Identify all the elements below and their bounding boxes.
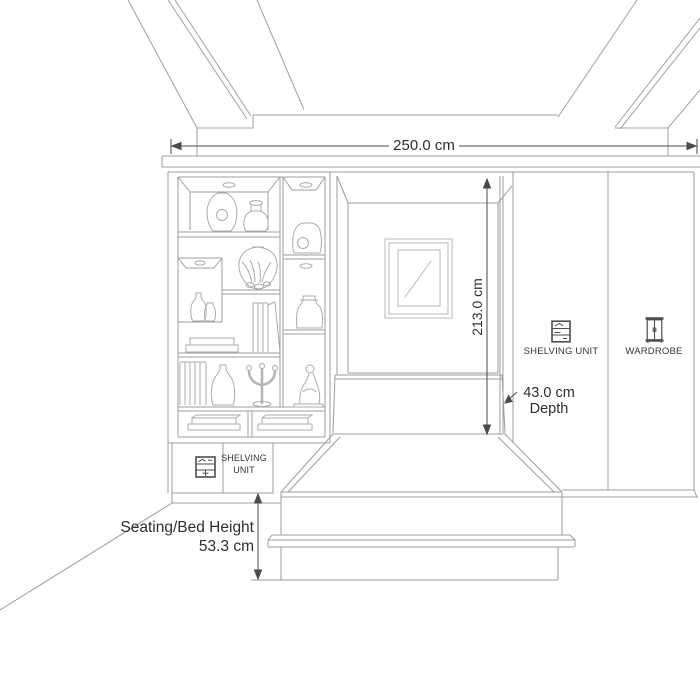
- dimension-seat-height-line: [255, 494, 262, 579]
- seat-height-dimension-label: Seating/Bed Height 53.3 cm: [58, 518, 254, 556]
- top-fascia: [162, 156, 700, 172]
- depth-word: Depth: [514, 402, 584, 418]
- height-dimension-label: 213.0 cm: [469, 252, 485, 362]
- left-shelving-line2: UNIT: [220, 464, 268, 476]
- ceiling-beams: [128, 0, 700, 156]
- picture-frame: [385, 239, 452, 318]
- seat-height-value: 53.3 cm: [58, 537, 254, 556]
- depth-dimension-label: 43.0 cm Depth: [514, 386, 584, 417]
- furniture-elevation-diagram: 250.0 cm 213.0 cm 43.0 cm Depth Seating/…: [0, 0, 700, 700]
- candelabra: [249, 369, 275, 403]
- shelving-unit-icon: [551, 320, 571, 348]
- bed-headboard: [333, 375, 505, 433]
- left-shelving-frame: [168, 172, 330, 493]
- width-dimension-label: 250.0 cm: [372, 137, 476, 154]
- right-cabinet-panels: [562, 172, 697, 497]
- left-shelving-line1: SHELVING: [220, 452, 268, 464]
- bed-seat: [251, 434, 575, 580]
- wardrobe-icon: [645, 317, 664, 348]
- seat-height-title: Seating/Bed Height: [58, 518, 254, 537]
- left-shelving-unit-label: SHELVING UNIT: [220, 452, 268, 476]
- shelf-decor-items: [180, 193, 323, 430]
- shelving-unit-icon: [195, 456, 216, 483]
- depth-value: 43.0 cm: [514, 386, 584, 402]
